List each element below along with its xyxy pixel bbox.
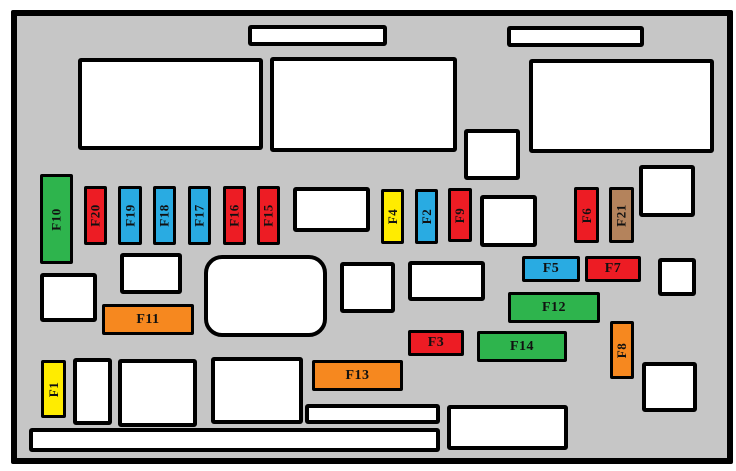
relay-box-bottom-2: [118, 359, 197, 427]
relay-box-bottom-4: [447, 405, 568, 450]
fuse-label: F9: [453, 207, 466, 222]
fuse-f9: F9: [448, 188, 472, 242]
fuse-label: F2: [420, 209, 433, 224]
fuse-label: F10: [50, 208, 63, 230]
fuse-f12: F12: [508, 292, 600, 323]
fuse-f13: F13: [312, 360, 403, 391]
top-slot-right: [507, 26, 644, 47]
relay-square-bottom-right: [642, 362, 697, 412]
fuse-label: F6: [580, 207, 593, 222]
fuse-f6: F6: [574, 187, 599, 243]
fuse-f19: F19: [118, 186, 142, 245]
top-slot-left: [248, 25, 387, 46]
long-bottom-slot: [29, 428, 440, 452]
fuse-f17: F17: [188, 186, 211, 245]
fuse-label: F7: [605, 262, 622, 276]
relay-box-fuse-row: [293, 187, 370, 232]
fuse-label: F15: [262, 204, 275, 226]
fuse-label: F20: [89, 204, 102, 226]
relay-box-mid-2: [408, 261, 485, 301]
fuse-f18: F18: [153, 186, 176, 245]
fuse-label: F16: [228, 204, 241, 226]
fuse-label: F8: [615, 342, 628, 357]
fuse-label: F21: [615, 204, 628, 226]
fuse-f1: F1: [41, 360, 66, 418]
fuse-f20: F20: [84, 186, 107, 245]
fuse-f15: F15: [257, 186, 280, 245]
fuse-f16: F16: [223, 186, 246, 245]
relay-box-top-left: [78, 58, 263, 150]
fuse-f7: F7: [585, 256, 641, 282]
thin-slot-mid: [305, 404, 440, 424]
fuse-f14: F14: [477, 331, 567, 362]
fuse-label: F3: [428, 336, 445, 350]
relay-box-mid-1: [340, 262, 395, 313]
fuse-f3: F3: [408, 330, 464, 356]
fuse-f5: F5: [522, 256, 580, 282]
fuse-label: F13: [345, 369, 369, 383]
relay-square-center: [464, 129, 520, 180]
rounded-relay-box: [204, 255, 327, 337]
fuse-f2: F2: [415, 189, 438, 244]
relay-square-right: [639, 165, 695, 217]
relay-box-bottom-1: [73, 358, 112, 425]
relay-box-above-f11: [120, 253, 182, 294]
fuse-label: F14: [510, 340, 534, 354]
fuse-label: F1: [47, 381, 60, 396]
fuse-f4: F4: [381, 189, 404, 244]
fuse-label: F12: [542, 301, 566, 315]
fuse-label: F11: [136, 313, 159, 327]
fuse-f8: F8: [610, 321, 634, 379]
fuse-label: F4: [386, 209, 399, 224]
relay-square-right-of-f7: [658, 258, 696, 296]
fuse-f21: F21: [609, 187, 634, 243]
relay-box-right-of-f9: [480, 195, 537, 247]
relay-box-bottom-3: [211, 357, 303, 424]
fuse-label: F18: [158, 204, 171, 226]
fuse-f10: F10: [40, 174, 73, 264]
fuse-box-diagram: F1F2F3F4F5F6F7F8F9F10F11F12F13F14F15F16F…: [0, 0, 736, 471]
fuse-label: F17: [193, 204, 206, 226]
fuse-label: F19: [124, 204, 137, 226]
relay-square-left: [40, 273, 97, 322]
relay-box-top-center: [270, 57, 457, 152]
fuse-label: F5: [543, 262, 560, 276]
fuse-f11: F11: [102, 304, 194, 335]
relay-box-top-right: [529, 59, 714, 153]
